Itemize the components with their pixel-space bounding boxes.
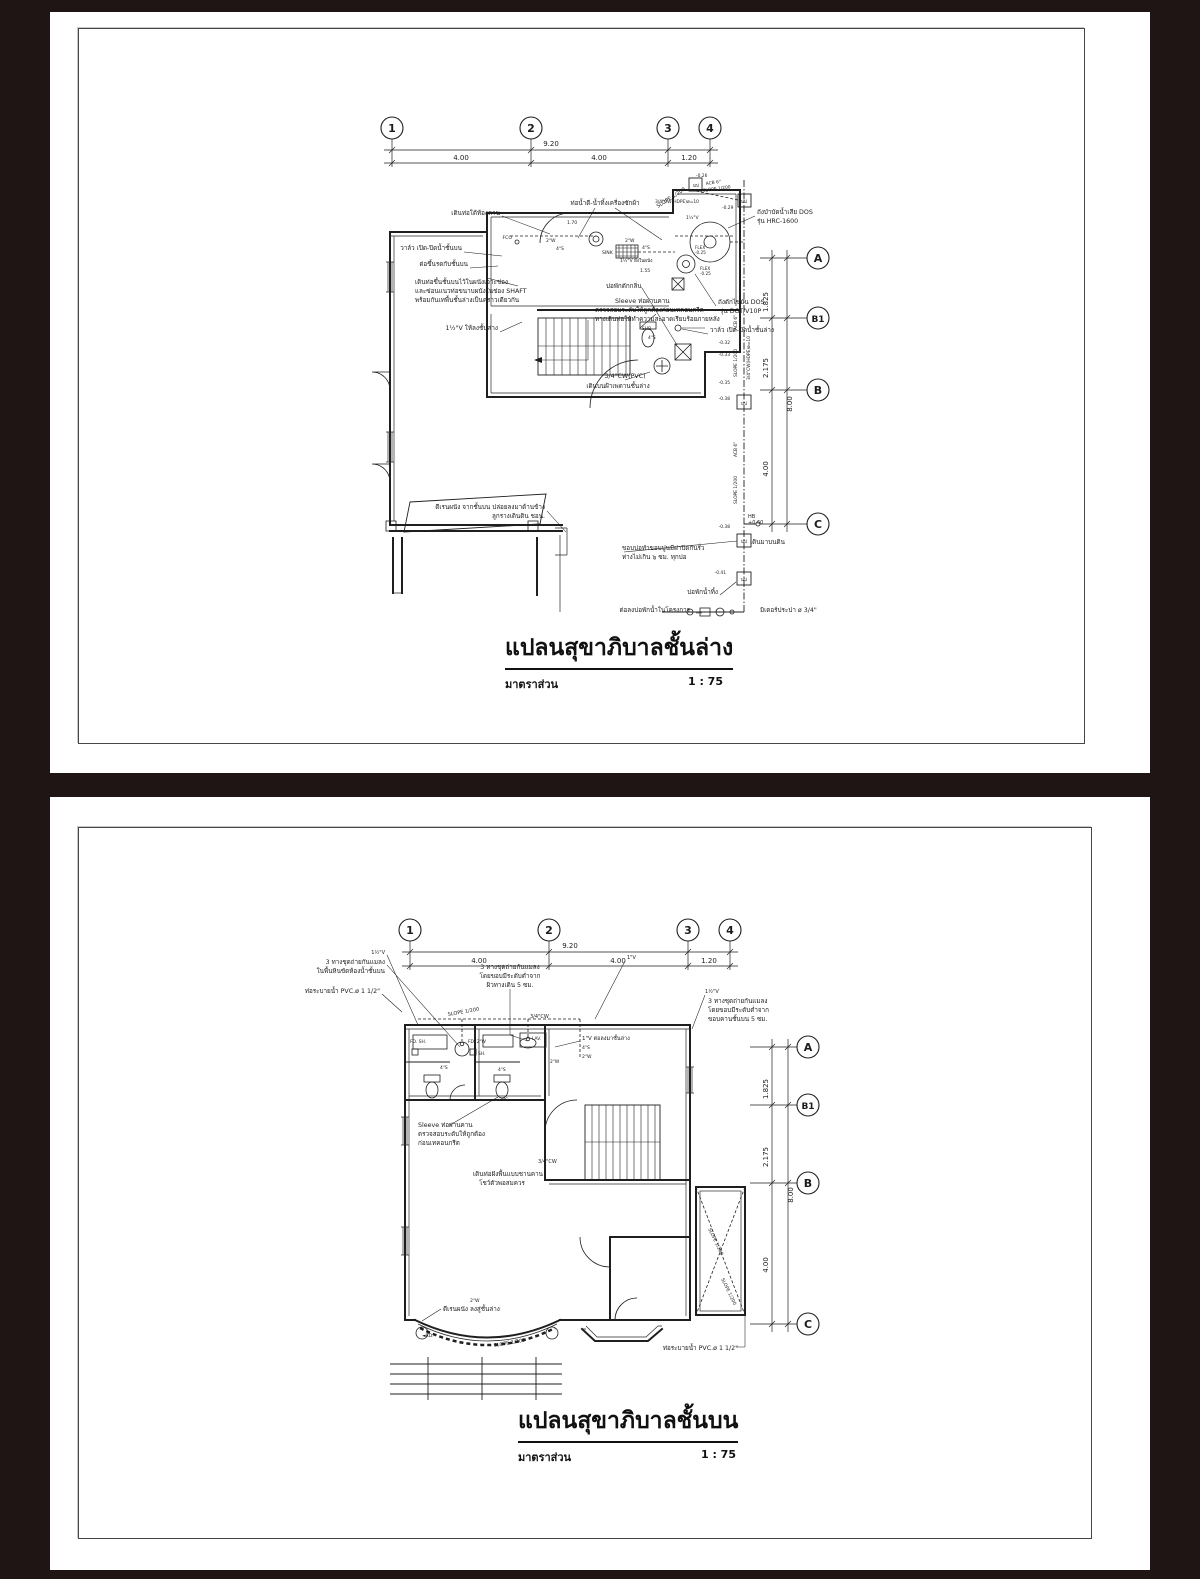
annotation-text: 4"S bbox=[642, 245, 650, 251]
plan-title: แปลนสุขาภิบาลชั้นบน bbox=[518, 1403, 738, 1443]
annotation-text: และซ่อนแนวท่อขนาบผนังในช่อง SHAFT bbox=[415, 287, 527, 295]
annotation-text: 1.55 bbox=[640, 268, 650, 274]
dim-overall: 8.00 bbox=[786, 396, 794, 412]
annotation-text: 1"V bbox=[627, 955, 636, 961]
annotation-text: โชว์ตัวพอสมควร bbox=[479, 1179, 525, 1187]
annotation-text: FCO bbox=[503, 235, 513, 241]
scale-value: 1 : 75 bbox=[701, 1448, 736, 1466]
grid-bubble-label: B1 bbox=[811, 315, 824, 325]
dim-segment: 1.20 bbox=[701, 957, 717, 965]
annotation-text: บ่อพักน้ำทิ้ง bbox=[687, 587, 718, 596]
annotation-text: โดยขอบมีระดับต่ำจาก bbox=[480, 971, 541, 980]
column-grid: 1 2 3 4 9.20 4.00 4.00 1.20 bbox=[381, 117, 721, 167]
annotation-text: ถังบำบัดน้ำเสีย DOS bbox=[757, 207, 813, 216]
dim-segment: 2.175 bbox=[762, 1147, 770, 1167]
annotation-text: SH. bbox=[478, 1051, 485, 1057]
dim-segment: 4.00 bbox=[591, 154, 607, 162]
annotation-text: โดยขอบมีระดับต่ำจาก bbox=[708, 1005, 769, 1014]
annotation-text: ท่อระบายน้ำ PVC.ø 1 1/2" bbox=[305, 986, 380, 995]
annotation-text: -0.33 bbox=[719, 352, 731, 358]
annotation-text: ดีเรนผนัง ลงสู่ชั้นล่าง bbox=[443, 1304, 500, 1313]
annotation-text: มป bbox=[741, 539, 747, 545]
annotation-text: รุ่น DGT/V10P bbox=[720, 308, 761, 315]
annotation-text: 2"W bbox=[546, 238, 556, 244]
annotation-text: 2"W bbox=[625, 238, 635, 244]
annotation-text: เดินท่อฝังพื้นแบบชานคาน bbox=[473, 1169, 544, 1178]
annotation-text: ต่อลงบ่อพักน้ำในโครงการ bbox=[619, 605, 690, 614]
annotation-text: 4"S bbox=[582, 1045, 590, 1051]
annotation-text: WC. bbox=[501, 1097, 510, 1103]
scale-value: 1 : 75 bbox=[688, 675, 723, 693]
annotation-text: ถังดักไขมัน DOS bbox=[718, 298, 765, 306]
annotation-text: LAV. bbox=[532, 1036, 541, 1042]
row-grid: A B1 B C 1.825 2.175 4.00 8.00 bbox=[750, 1036, 819, 1335]
grid-bubble-label: 3 bbox=[684, 924, 692, 937]
annotation-text: FD. SH. bbox=[410, 1039, 426, 1045]
annotation-text: 3 ทางชุดถ่ายกันแมลง bbox=[708, 998, 767, 1005]
annotation-text: ต่อขึ้นรดกับชั้นบน bbox=[419, 259, 468, 268]
annotation-text: มป bbox=[741, 401, 747, 407]
annotation-text: 3/4"CW bbox=[538, 1159, 557, 1165]
annotation-text: ทางเดินท่อให้ทำความสะอาดเรียบร้อยภายหลัง bbox=[595, 315, 720, 323]
grid-bubble-label: C bbox=[804, 1318, 812, 1331]
grid-bubble-label: 4 bbox=[706, 122, 714, 135]
annotation-text: 4"S bbox=[556, 246, 564, 252]
annotation-text: ขอบบ่อทำขอบปูนมีฝาปิดกันรั่ว bbox=[622, 543, 705, 552]
annotation-text: SHB bbox=[642, 326, 651, 332]
annotation-text: พร้อมกันเทพื้นชั้นล่างเป็นคราวเดียวกัน bbox=[415, 295, 520, 304]
annotation-text: SLOPE 1/200 bbox=[733, 349, 739, 377]
walls bbox=[390, 1025, 745, 1400]
dim-segment: 1.20 bbox=[681, 154, 697, 162]
annotation-text: 3/4"CW(HDPE)ø=10 bbox=[746, 336, 752, 380]
grid-bubble-label: C bbox=[814, 518, 822, 531]
annotation-text: 1½"V bbox=[686, 214, 699, 221]
column-grid: 1 2 3 4 9.20 4.00 4.00 1.20 bbox=[399, 919, 741, 970]
annotation-text: วาล์ว เปิด-ปิดน้ำชั้นล่าง bbox=[710, 325, 774, 334]
annotation-text: SLOPE 1/200 bbox=[656, 187, 687, 210]
annotation-text: มป bbox=[741, 199, 747, 205]
annotation-text: FD. 2"W bbox=[468, 1039, 487, 1045]
annotation-text: 4"S bbox=[648, 335, 656, 341]
annotation-text: SLOPE 1/200 bbox=[447, 1007, 479, 1018]
annotation-text: 1½"V ให้ลงชั้นล่าง bbox=[445, 323, 498, 332]
annotation-text: ในพื้นหินขัดห้องน้ำชั้นบน bbox=[317, 966, 386, 975]
door-arcs bbox=[450, 1085, 637, 1320]
annotation-text: ลูกรางเดินดิน ชอน. bbox=[492, 512, 545, 520]
dim-overall: 9.20 bbox=[543, 140, 559, 148]
annotation-text: Sleeve ท่อผ่านคาน bbox=[418, 1122, 473, 1129]
sheet-upper-floor: 1 2 3 4 9.20 4.00 4.00 1.20 A B1 B C 1.8… bbox=[50, 797, 1150, 1570]
dim-segment: 4.00 bbox=[762, 461, 770, 477]
annotation-text: มิเตอร์ประปา ø 3/4" bbox=[760, 606, 817, 614]
grid-bubble-label: 2 bbox=[527, 122, 535, 135]
annotation-text: -0.32 bbox=[719, 340, 731, 346]
annotation-text: -0.25 bbox=[700, 271, 711, 276]
annotation-text: 3/4"CW(PVC) bbox=[604, 373, 645, 380]
plan-title: แปลนสุขาภิบาลชั้นล่าง bbox=[505, 630, 733, 670]
annotation-text: ACB 6" bbox=[733, 315, 739, 330]
annotation-text: 1.70 bbox=[567, 220, 577, 226]
annotation-text: 3 ทางชุดถ่ายกันแมลง bbox=[326, 959, 385, 966]
title-block: แปลนสุขาภิบาลชั้นบน มาตราส่วน 1 : 75 bbox=[518, 1403, 738, 1466]
annotation-text: เดินบนฝ้าเพดานชั้นล่าง bbox=[586, 381, 649, 390]
stairs bbox=[534, 318, 630, 375]
annotation-text: 3/4"CW bbox=[530, 1014, 549, 1020]
annotation-text: 2"W bbox=[550, 1059, 560, 1065]
annotation-text: SLOPE 1/200 bbox=[493, 1338, 525, 1349]
annotation-text: +0.60 bbox=[748, 520, 763, 526]
scale-label: มาตราส่วน bbox=[505, 675, 558, 693]
dim-segment: 2.175 bbox=[762, 358, 770, 378]
annotation-text: -0.35 bbox=[719, 380, 731, 386]
grid-bubble-label: A bbox=[814, 252, 823, 265]
annotation-text: รุ่น HRC-1600 bbox=[757, 218, 798, 225]
annotation-text: มป bbox=[693, 183, 699, 189]
grid-bubble-label: 3 bbox=[664, 122, 672, 135]
annotation-text: SLOPE 1/200 bbox=[719, 1277, 737, 1306]
annotation-text: 1½"V bbox=[371, 949, 385, 956]
grid-bubble-label: 1 bbox=[406, 924, 414, 937]
annotation-text: 2"W bbox=[470, 1298, 480, 1304]
annotation-text: ขอบคานชั้นบน 5 ซม. bbox=[708, 1014, 767, 1023]
grid-bubble-label: 2 bbox=[545, 924, 553, 937]
grid-bubble-label: B1 bbox=[801, 1102, 814, 1112]
title-block: แปลนสุขาภิบาลชั้นล่าง มาตราส่วน 1 : 75 bbox=[505, 630, 733, 693]
annotation-text: -0.41 bbox=[715, 570, 727, 576]
annotation-text: ท่อระบายน้ำ PVC.ø 1 1/2" bbox=[663, 1343, 738, 1352]
annotation-text: ตรวจสอบระดับให้ถูกต้องก่อนเทคอนกรีต bbox=[595, 306, 704, 314]
annotation-text: -0.38 bbox=[719, 524, 731, 530]
stairs bbox=[585, 1105, 660, 1180]
annotation-text: ผิวทางเดิน 5 ซม. bbox=[486, 981, 533, 989]
grid-bubble-label: A bbox=[804, 1041, 813, 1054]
annotation-text: -0.29 bbox=[722, 205, 734, 211]
annotation-text: 3/4"CW(HDPE)ø=10 bbox=[655, 199, 699, 205]
door-arcs bbox=[372, 213, 638, 482]
dim-overall: 9.20 bbox=[562, 942, 578, 950]
annotation-text: เดินท่อใต้ท้องคาน bbox=[451, 209, 500, 217]
annotation-text: SLOPE 1/200 bbox=[733, 476, 739, 504]
row-grid: A B1 B C 1.825 2.175 4.00 8.00 bbox=[760, 247, 829, 535]
grid-bubble-label: 4 bbox=[726, 924, 734, 937]
dim-segment: 1.825 bbox=[762, 1079, 770, 1099]
annotation-text: มป bbox=[741, 577, 747, 583]
grid-bubble-label: B bbox=[804, 1177, 812, 1190]
annotation-text: บ่อพักดักกลิ่น bbox=[606, 281, 642, 290]
annotation-text: ตรวจสอบระดับให้ถูกต้อง bbox=[418, 1130, 485, 1138]
annotation-text: 4"S bbox=[440, 1065, 448, 1071]
annotation-text: 4"S bbox=[498, 1067, 506, 1073]
annotation-text: 1"V ต่อลงมาชั้นล่าง bbox=[582, 1034, 630, 1042]
dim-segment: 4.00 bbox=[453, 154, 469, 162]
annotation-text: ก่อนเทคอนกรีต bbox=[418, 1139, 460, 1147]
annotation-text: ◄RD. bbox=[422, 1333, 434, 1339]
scale-label: มาตราส่วน bbox=[518, 1448, 571, 1466]
annotation-text: เดินมาบนดิน bbox=[750, 538, 786, 546]
annotation-text: 2"W bbox=[582, 1054, 592, 1060]
annotation-text: SINK bbox=[602, 250, 614, 256]
dim-segment: 4.00 bbox=[762, 1257, 770, 1273]
grid-bubble-label: 1 bbox=[388, 122, 396, 135]
annotation-text: -0.38 bbox=[719, 396, 731, 402]
annotation-text: ดีเรนผนัง จากชั้นบน ปล่อยลงมาด้านข้าง bbox=[435, 502, 545, 511]
annotation-text: SLOPE 1/200 bbox=[706, 1227, 724, 1256]
annotation-text: -0.26 bbox=[696, 173, 708, 179]
annotation-text: 1½"V ฝังในผนัง bbox=[620, 257, 652, 264]
annotation-text: 1½"V bbox=[705, 988, 719, 995]
annotation-text: ACB 6" bbox=[733, 442, 739, 457]
sheet-ground-floor: 1 2 3 4 9.20 4.00 4.00 1.20 A B1 B C 1.8… bbox=[50, 12, 1150, 773]
grid-bubble-label: B bbox=[814, 384, 822, 397]
annotation-text: ห่างไม่เกิน ๖ ซม. ทุกบ่อ bbox=[622, 553, 687, 561]
annotation-text: เดินท่อขึ้นชั้นบนไว้ในผนังเจาะช่อง bbox=[415, 277, 508, 286]
annotation-text: วาล์ว เปิด-ปิดน้ำชั้นบน bbox=[400, 243, 462, 252]
leader-lines bbox=[464, 208, 755, 613]
annotation-text: 3 ทางชุดถ่ายกันแมลง bbox=[480, 964, 539, 971]
annotation-text: -0.25 bbox=[695, 250, 706, 255]
annotation-text: Sleeve ท่อผ่านคาน bbox=[615, 298, 670, 305]
annotation-text: ท่อน้ำดี-น้ำทิ้งเครื่องซักผ้า bbox=[570, 198, 639, 207]
dim-overall: 8.00 bbox=[787, 1187, 795, 1203]
